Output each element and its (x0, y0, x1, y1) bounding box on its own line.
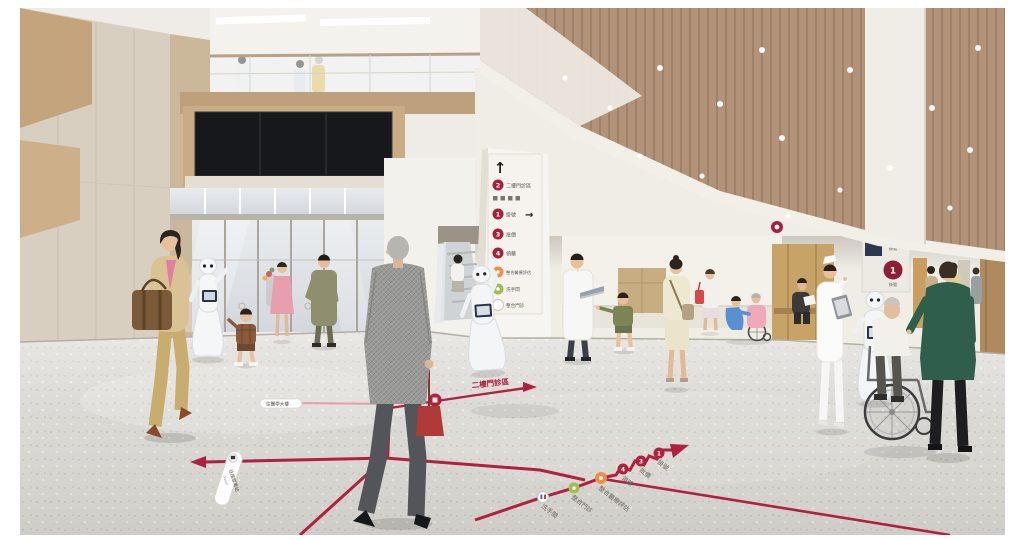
scene: 0067 1 掛號 1 掛號 (20, 8, 1005, 535)
badge-2-num: 2 (496, 182, 501, 190)
video-wall-screens (195, 112, 392, 176)
label-integrated-assessment: 整合醫療評估 (506, 269, 531, 276)
stop-4-num: 4 (621, 467, 625, 474)
clerestory-glass (170, 188, 415, 214)
direction-pill: 往醫學大樓 (260, 399, 302, 408)
column-directory-sign: ↑ 2 二樓門診區 1 掛號 → 3 批價 4 領藥 整合醫療評估 洗手間 整合… (488, 154, 542, 314)
shoulder-bag (682, 304, 694, 320)
stop-3-num: 3 (639, 459, 643, 466)
red-bag (695, 290, 704, 304)
badge-3-num: 3 (496, 231, 501, 239)
label-cashier: 批價 (506, 232, 516, 239)
badge-1-num: 1 (496, 211, 501, 219)
wall-roundel-icon (771, 221, 783, 233)
badge-4-num: 4 (496, 250, 501, 258)
hospital-lobby-rendering: 0067 1 掛號 1 掛號 (0, 0, 1025, 540)
handbag (132, 290, 172, 330)
bus-icon (231, 456, 235, 459)
label-pharmacy: 領藥 (506, 251, 516, 258)
counter-badge-caption: 掛號 (889, 281, 897, 287)
red-shopping-bag (416, 406, 444, 436)
label-registration: 掛號 (506, 212, 516, 219)
counter-badge-number: 1 (890, 267, 896, 277)
label-restroom: 洗手間 (506, 286, 520, 293)
scene-svg: 0067 1 掛號 1 掛號 (20, 8, 1005, 535)
label-2f-outpatient: 二樓門診區 (506, 183, 531, 190)
direction-pill-label: 往醫學大樓 (266, 401, 289, 408)
up-arrow-icon: ↑ (494, 159, 507, 177)
label-integrated-clinic: 整合門診 (506, 302, 525, 309)
white-beam-vertical (865, 8, 925, 244)
stop-restroom-icon (538, 492, 549, 503)
stop-1-num: 1 (657, 451, 661, 458)
right-arrow-icon: → (525, 210, 533, 221)
